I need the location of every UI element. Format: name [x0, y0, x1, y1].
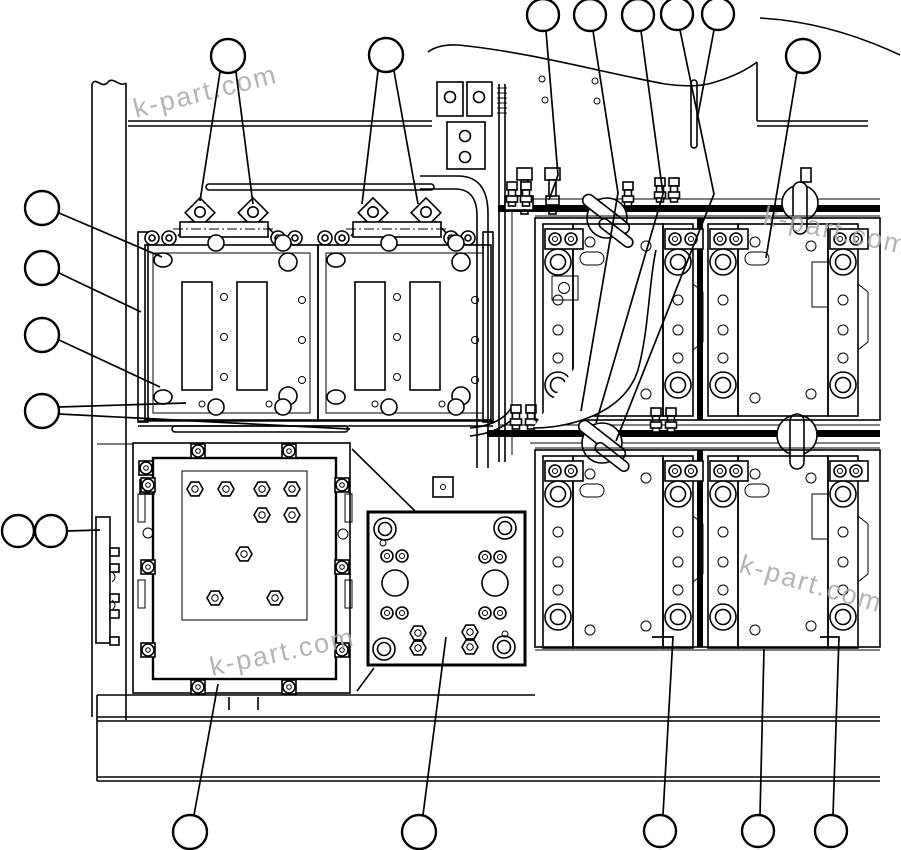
watermark-0: k-part.com: [130, 59, 280, 124]
leader-line-c15-0: [194, 684, 218, 815]
callout-balloon-c8[interactable]: [786, 39, 820, 73]
callout-balloon-c6[interactable]: [661, 0, 693, 30]
callout-balloon-c3[interactable]: [527, 0, 559, 31]
leader-line-c19-0: [820, 637, 839, 815]
parts-diagram-page: k-part.comk-part.comk-part.comk-part.com: [0, 0, 901, 850]
leader-line-c7-0: [697, 30, 714, 120]
callout-balloon-c19[interactable]: [815, 815, 847, 847]
callout-balloon-c16[interactable]: [402, 815, 436, 849]
bottom-right-valve-group: [535, 448, 880, 650]
callout-balloon-c2[interactable]: [369, 38, 403, 72]
callout-balloon-c1[interactable]: [211, 39, 245, 73]
parts-diagram: k-part.comk-part.comk-part.comk-part.com: [0, 0, 901, 850]
leader-line-c12-0: [59, 403, 186, 407]
watermark-2: k-part.com: [736, 549, 886, 619]
callout-balloon-c11[interactable]: [25, 318, 59, 352]
callout-balloon-c18[interactable]: [742, 815, 774, 847]
callout-balloon-c13[interactable]: [2, 515, 34, 547]
leader-line-c14-0: [67, 530, 100, 531]
leader-line-c17-0: [652, 637, 673, 815]
callout-balloon-c7[interactable]: [702, 0, 734, 30]
left-post-bracket: [96, 517, 119, 645]
callout-balloon-c9[interactable]: [25, 191, 59, 225]
leader-line-c18-0: [760, 649, 764, 815]
center-plate: [368, 477, 525, 665]
callout-balloon-c5[interactable]: [622, 0, 654, 31]
callout-balloon-c4[interactable]: [574, 0, 606, 31]
callout-balloon-c15[interactable]: [173, 815, 207, 849]
callout-balloon-c10[interactable]: [25, 251, 59, 285]
callout-balloon-c12[interactable]: [25, 394, 59, 428]
callout-balloon-c17[interactable]: [644, 815, 676, 847]
leader-line-c10-0: [59, 273, 141, 312]
top-right-valve-group: [533, 216, 880, 428]
callout-balloon-c14[interactable]: [35, 515, 67, 547]
